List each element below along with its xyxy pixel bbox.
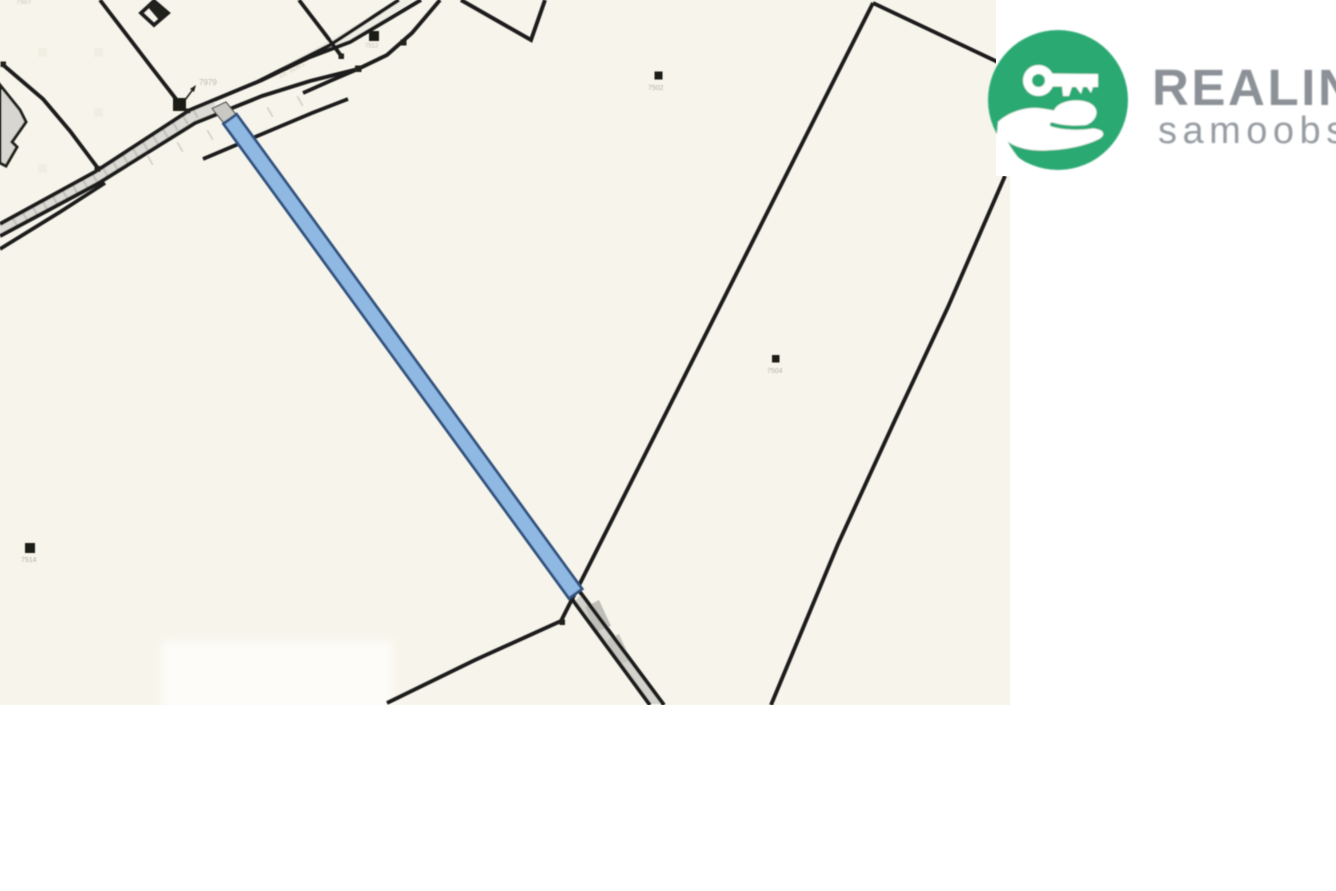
svg-text:samoobslu: samoobslu bbox=[1158, 110, 1336, 152]
svg-text:7502: 7502 bbox=[648, 85, 664, 92]
svg-text:7512: 7512 bbox=[365, 44, 379, 50]
svg-text:7514: 7514 bbox=[21, 557, 37, 564]
svg-text:REALIN: REALIN bbox=[1152, 59, 1336, 116]
svg-text:7979: 7979 bbox=[199, 78, 217, 87]
svg-text:7504: 7504 bbox=[767, 368, 783, 375]
svg-text:7507: 7507 bbox=[16, 0, 32, 6]
